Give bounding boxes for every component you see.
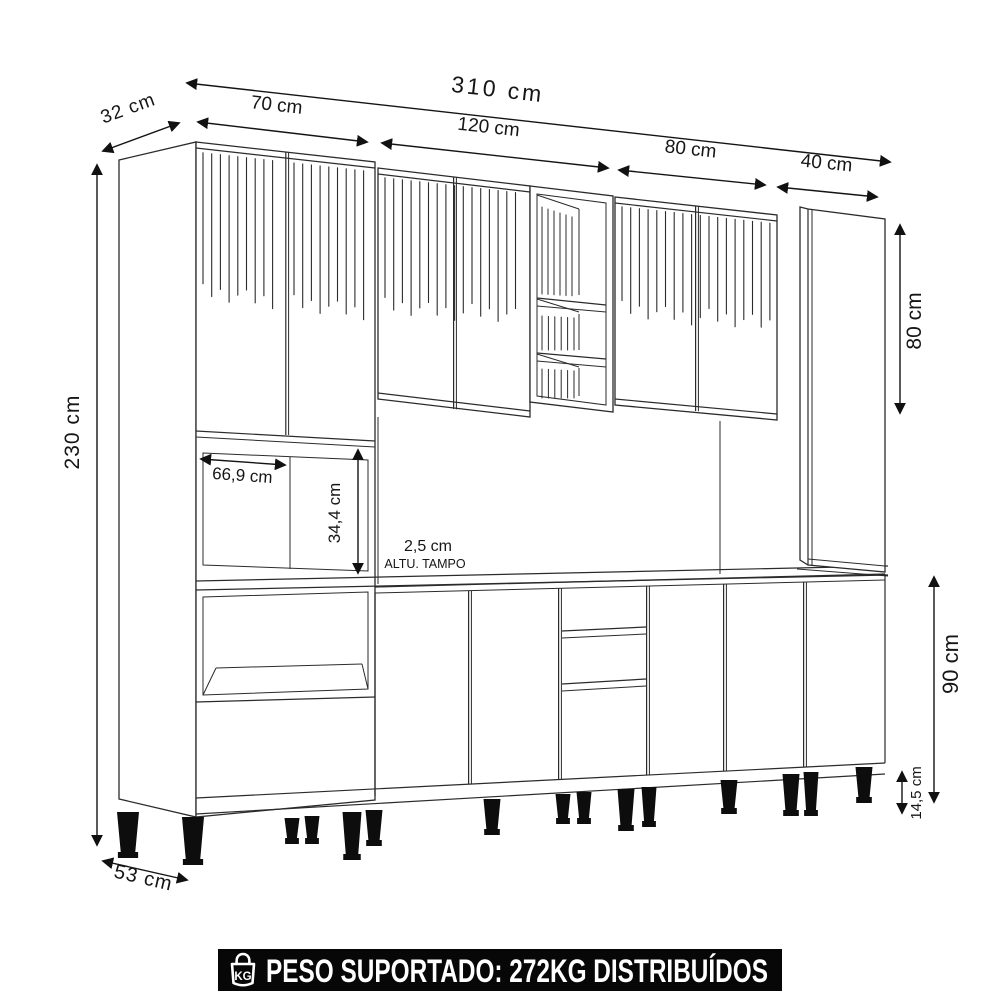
- left-side-panel: [119, 142, 196, 817]
- cabinet-foot: [642, 787, 657, 827]
- cabinet-foot: [856, 767, 873, 803]
- label-countertop-caption: ALTU. TAMPO: [384, 557, 466, 571]
- base-cabinets-part: [375, 580, 885, 593]
- cabinet-foot: [285, 818, 300, 844]
- label-middle-section-width: 120 cm: [456, 114, 520, 142]
- cabinet-foot: [577, 792, 592, 824]
- cabinet-foot: [366, 810, 383, 846]
- label-far-right-section-width: 40 cm: [800, 151, 854, 177]
- kitchen-cabinet-drawing: [117, 142, 888, 865]
- drawer-stack: [562, 627, 646, 691]
- cabinet-foot: [343, 812, 362, 860]
- dim-line-left-section: [198, 122, 367, 142]
- cabinet-foot: [721, 780, 738, 814]
- drawer-stack-part: [562, 634, 646, 638]
- cabinet-foot: [556, 794, 571, 824]
- weight-capacity-banner: KG PESO SUPORTADO: 272KG DISTRIBUÍDOS: [218, 949, 782, 991]
- cabinet-foot: [804, 772, 819, 816]
- cabinet-foot: [484, 799, 501, 835]
- label-countertop-thickness: 2,5 cm: [404, 538, 452, 555]
- label-upper-cabinet-height: 80 cm: [903, 292, 926, 349]
- open-shelf-unit: [530, 186, 613, 412]
- drawer-stack-part: [562, 627, 646, 631]
- drawer-stack-part: [562, 679, 646, 684]
- dim-line-right-section: [619, 170, 765, 185]
- dim-line-middle-section: [382, 143, 608, 168]
- label-right-section-width: 80 cm: [664, 136, 718, 162]
- label-bottom-depth: 53 cm: [112, 861, 175, 896]
- label-total-height: 230 cm: [61, 395, 84, 470]
- drawer-stack-part: [562, 686, 646, 691]
- diagram-canvas: 310 cm 32 cm 70 cm 120 cm 80 cm 40 cm 23…: [0, 0, 1000, 1000]
- tall-side-cabinet: [797, 207, 888, 576]
- label-niche-height: 34,4 cm: [325, 483, 344, 543]
- label-base-cabinet-height: 90 cm: [938, 634, 963, 694]
- cabinet-foot: [182, 817, 204, 865]
- furniture-dimension-diagram: 310 cm 32 cm 70 cm 120 cm 80 cm 40 cm 23…: [0, 0, 1000, 1000]
- dim-line-top-depth: [103, 123, 179, 151]
- banner-label: PESO SUPORTADO: 272KG DISTRIBUÍDOS: [266, 953, 768, 989]
- dim-line-far-right-section: [778, 187, 877, 197]
- cabinet-foot: [618, 789, 635, 831]
- cabinet-foot: [783, 774, 800, 816]
- label-left-section-width: 70 cm: [250, 92, 304, 119]
- tall-side-cabinet-part: [800, 207, 885, 572]
- cabinet-foot: [305, 816, 320, 844]
- label-top-depth: 32 cm: [98, 89, 159, 128]
- kg-icon-label: KG: [234, 971, 251, 983]
- cabinet-foot: [117, 812, 139, 858]
- label-total-width: 310 cm: [450, 71, 546, 107]
- label-feet-height: 14,5 cm: [908, 766, 925, 819]
